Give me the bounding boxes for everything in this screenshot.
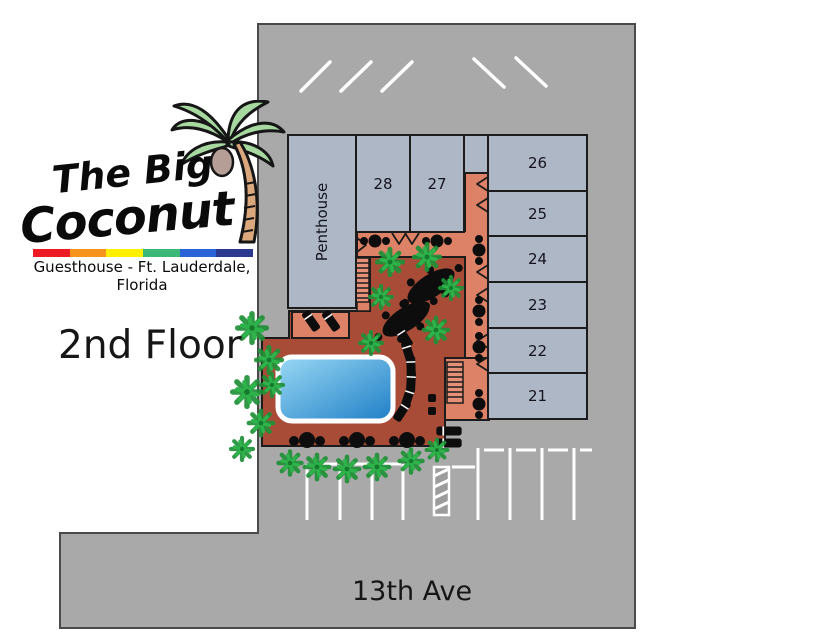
floorplan-canvas: Penthouse 28 27 26 25 24 23 22 21 [0, 0, 828, 640]
street-label: 13th Ave [352, 576, 472, 607]
site-map-decor [0, 0, 828, 640]
rainbow-bar [33, 249, 253, 257]
logo-subtitle: Guesthouse - Ft. Lauderdale, Florida [24, 258, 260, 294]
floor-label: 2nd Floor [58, 323, 242, 368]
